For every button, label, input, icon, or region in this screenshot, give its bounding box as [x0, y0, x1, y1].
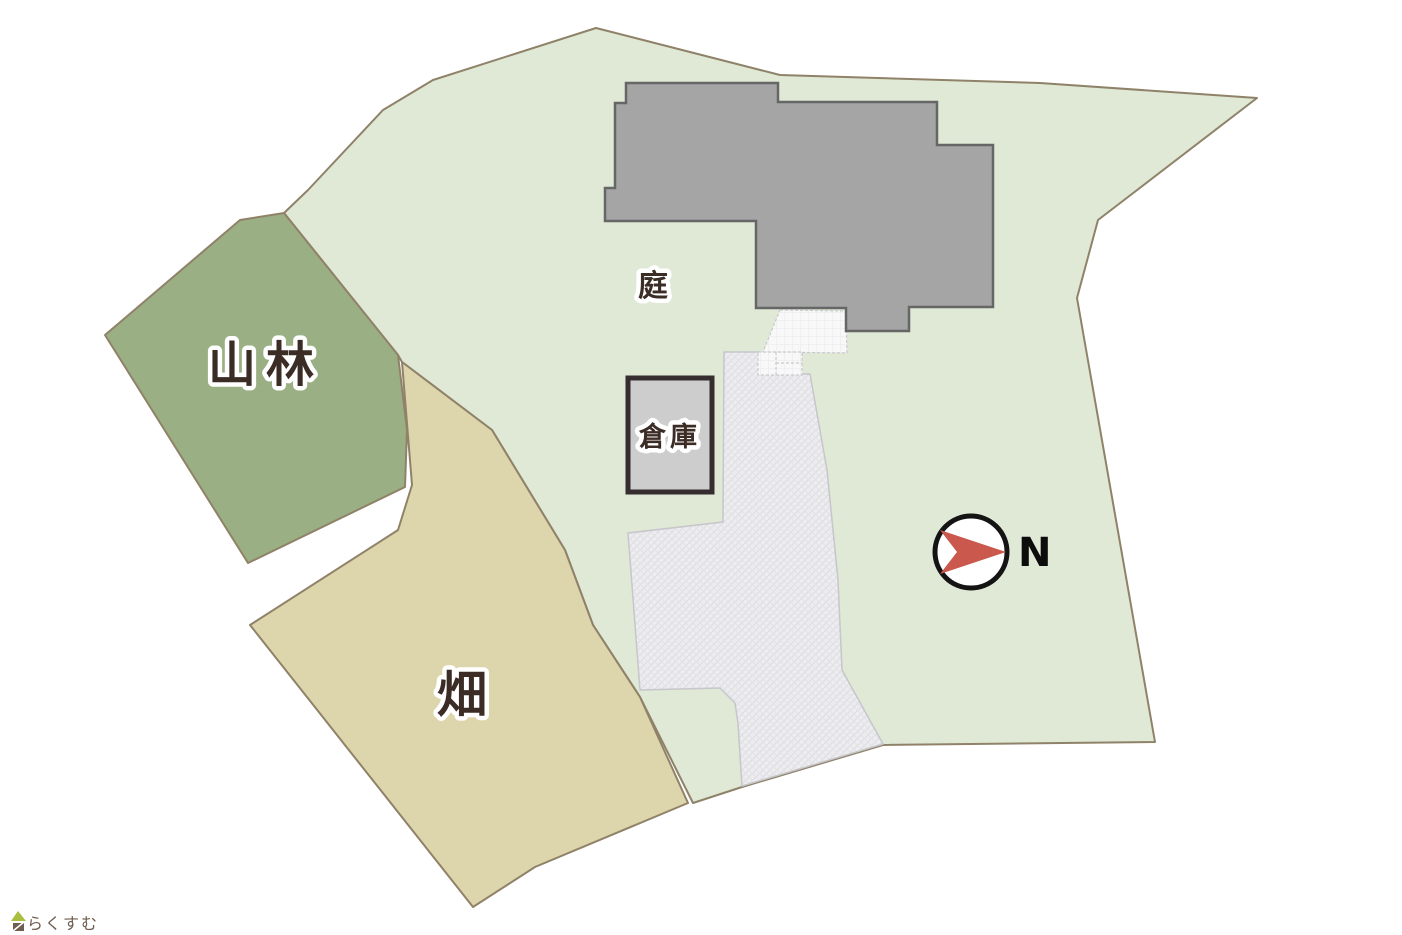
site-plan: 倉庫 山林 畑 庭 N らくすむ — [0, 0, 1402, 935]
warehouse: 倉庫 — [628, 378, 712, 492]
logo-text: らくすむ — [27, 914, 99, 933]
logo: らくすむ — [11, 911, 99, 933]
logo-house-roof-icon — [11, 911, 26, 921]
warehouse-label: 倉庫 — [638, 421, 701, 453]
compass-north-label: N — [1018, 530, 1051, 576]
porch-step-box — [758, 352, 802, 375]
garden-label: 庭 — [638, 269, 668, 304]
forest-label: 山林 — [208, 337, 324, 393]
field-label: 畑 — [437, 666, 487, 724]
site-plan-canvas: 倉庫 山林 畑 庭 N らくすむ — [0, 0, 1402, 935]
